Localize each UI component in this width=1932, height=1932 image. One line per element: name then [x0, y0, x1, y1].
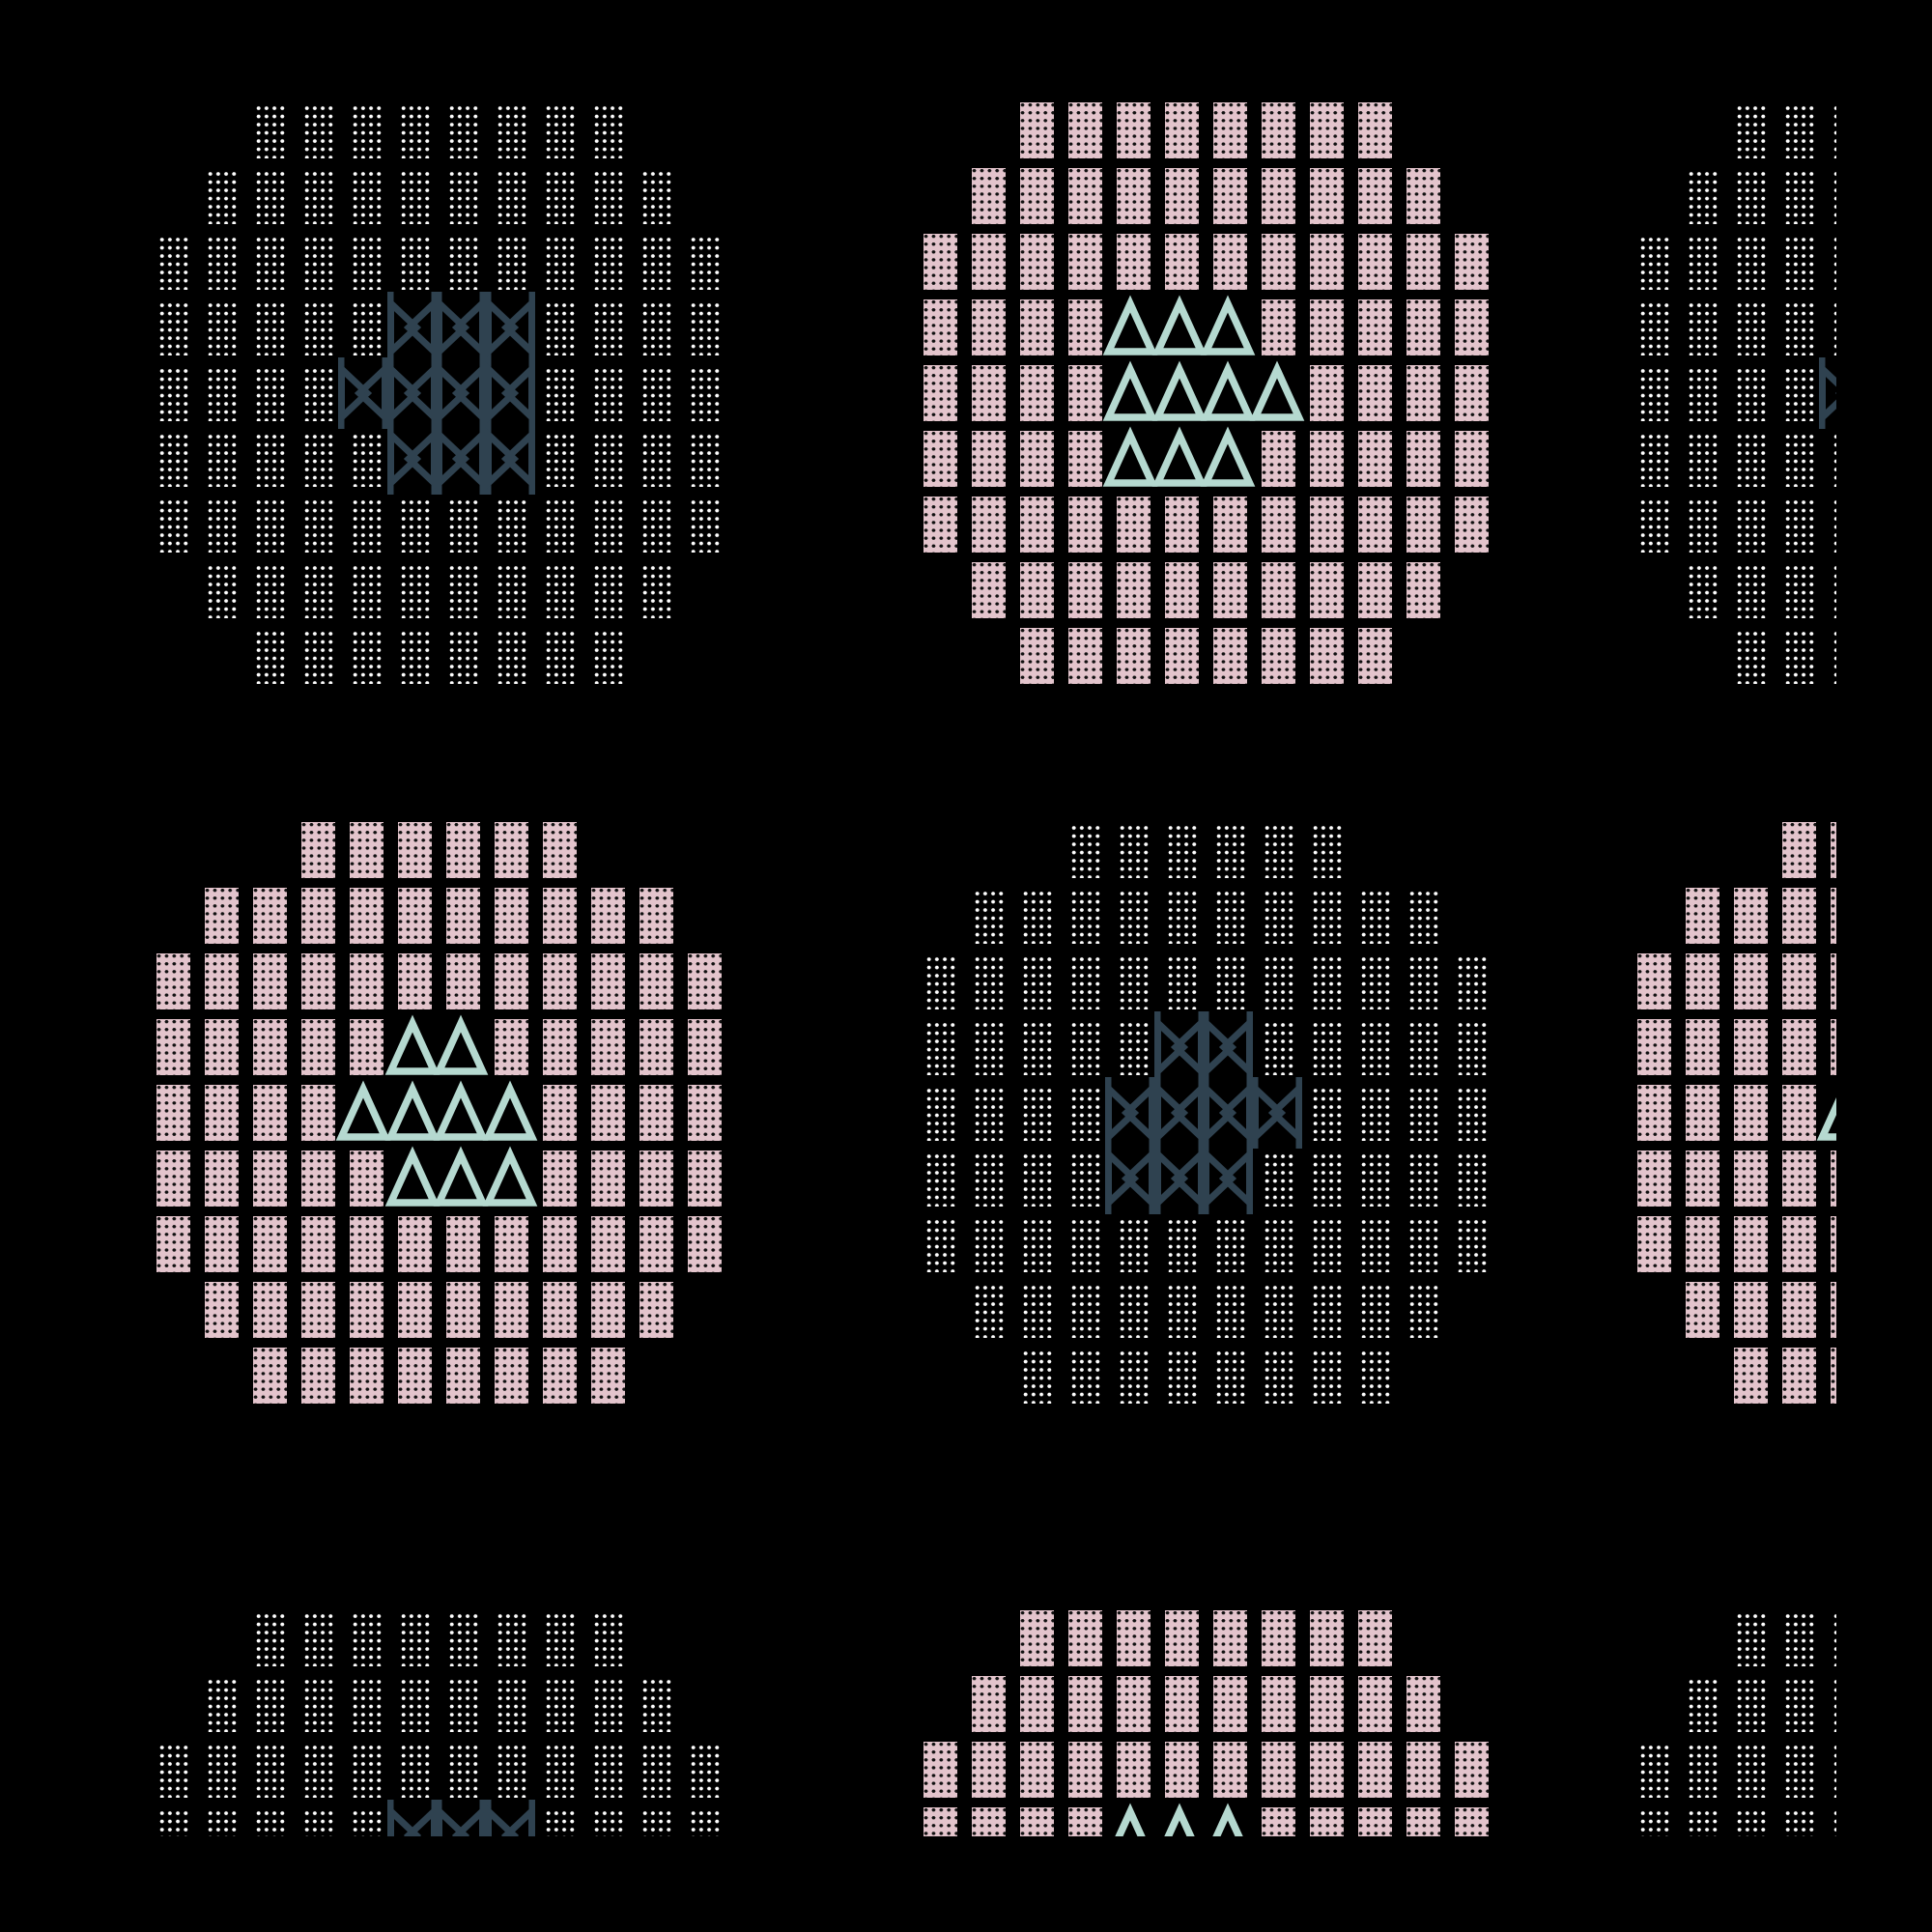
dotted-tile [1686, 1676, 1719, 1732]
dotted-tile [1734, 431, 1768, 487]
dotted-tile [1782, 299, 1816, 355]
dotted-tile [1734, 1742, 1768, 1798]
dotted-tile [1117, 234, 1151, 290]
dotted-tile [1406, 234, 1440, 290]
dotted-tile [1068, 299, 1102, 355]
dotted-tile [639, 234, 673, 290]
dotted-tile [350, 953, 384, 1009]
dotted-tile [350, 1742, 384, 1798]
bowtie-icon [387, 357, 438, 429]
dotted-tile [1117, 628, 1151, 684]
dotted-tile [205, 431, 239, 487]
dotted-tile [1734, 1019, 1768, 1075]
dotted-tile [446, 1282, 480, 1338]
bowtie-icon [1203, 1077, 1253, 1149]
dotted-tile [156, 1085, 190, 1141]
dotted-tile [543, 562, 577, 618]
dotted-tile [639, 497, 673, 553]
dotted-tile [1068, 1282, 1102, 1338]
dotted-tile [301, 1282, 335, 1338]
dotted-tile [350, 1019, 384, 1075]
dotted-tile [1734, 1216, 1768, 1272]
dotted-tile [1831, 168, 1836, 224]
dotted-tile [301, 1085, 335, 1141]
dotted-tile [301, 299, 335, 355]
dotted-tile [1455, 1019, 1489, 1075]
dotted-tile [1782, 168, 1816, 224]
dotted-tile [1406, 1742, 1440, 1798]
dotted-tile [1406, 562, 1440, 618]
dotted-tile [1262, 299, 1295, 355]
dotted-tile [639, 1151, 673, 1207]
dotted-tile [205, 365, 239, 421]
dotted-tile [1734, 953, 1768, 1009]
dotted-tile [543, 888, 577, 944]
dotted-tile [1262, 1610, 1295, 1666]
dotted-tile [1455, 497, 1489, 553]
dotted-tile [446, 1676, 480, 1732]
dotted-tile [1117, 1019, 1151, 1075]
dotted-tile [1406, 497, 1440, 553]
dotted-tile [1020, 1807, 1054, 1836]
dotted-tile [1782, 1742, 1816, 1798]
dotted-tile [1831, 1216, 1836, 1272]
dotted-tile [1734, 1151, 1768, 1207]
triangle-icon [1203, 299, 1253, 355]
dotted-tile [1213, 1676, 1247, 1732]
dotted-tile [156, 1742, 190, 1798]
dotted-tile [543, 234, 577, 290]
pattern-canvas [0, 0, 1932, 1932]
dotted-tile [1406, 1216, 1440, 1272]
dotted-tile [543, 431, 577, 487]
dotted-tile [156, 431, 190, 487]
dotted-tile [1358, 1610, 1392, 1666]
dotted-tile [1831, 1807, 1836, 1836]
dotted-tile [1782, 1282, 1816, 1338]
dotted-tile [1020, 1019, 1054, 1075]
dotted-tile [1068, 1676, 1102, 1732]
dotted-tile [350, 562, 384, 618]
dotted-tile [156, 953, 190, 1009]
dotted-tile [1165, 628, 1199, 684]
dotted-tile [398, 1348, 432, 1404]
dotted-tile [1455, 1216, 1489, 1272]
dotted-tile [1406, 1807, 1440, 1836]
dotted-tile [495, 1742, 528, 1798]
dotted-tile [350, 888, 384, 944]
dotted-tile [1165, 822, 1199, 878]
dotted-tile [350, 102, 384, 158]
dotted-tile [1068, 1085, 1102, 1141]
dotted-tile [1117, 1742, 1151, 1798]
dotted-tile [1310, 1151, 1344, 1207]
dotted-tile [1310, 1019, 1344, 1075]
dotted-tile [543, 1085, 577, 1141]
dotted-tile [1406, 365, 1440, 421]
dotted-tile [1637, 1742, 1671, 1798]
dotted-tile [591, 953, 625, 1009]
dotted-tile [1637, 1807, 1671, 1836]
dotted-tile [1637, 234, 1671, 290]
triangle-icon [485, 1151, 535, 1207]
dotted-tile [301, 1742, 335, 1798]
dotted-tile [1406, 1019, 1440, 1075]
dotted-tile [1213, 888, 1247, 944]
dotted-tile [1358, 365, 1392, 421]
dotted-tile [1734, 234, 1768, 290]
dotted-tile [1213, 822, 1247, 878]
dotted-tile [1782, 1610, 1816, 1666]
dotted-tile [591, 299, 625, 355]
dotted-tile [1782, 1676, 1816, 1732]
dotted-tile [301, 888, 335, 944]
dotted-tile [1782, 562, 1816, 618]
dotted-tile [972, 234, 1006, 290]
dotted-tile [639, 1282, 673, 1338]
dotted-tile [688, 1807, 722, 1836]
dotted-tile [1406, 1676, 1440, 1732]
dotted-tile [923, 1742, 957, 1798]
dotted-tile [1637, 299, 1671, 355]
dotted-tile [639, 1807, 673, 1836]
triangle-icon [387, 1151, 438, 1207]
dotted-tile [1310, 234, 1344, 290]
dotted-tile [1686, 1282, 1719, 1338]
dotted-tile [1117, 953, 1151, 1009]
dotted-tile [446, 1348, 480, 1404]
dotted-tile [1831, 431, 1836, 487]
dotted-tile [1262, 1742, 1295, 1798]
dotted-tile [1637, 431, 1671, 487]
dotted-tile [591, 1807, 625, 1836]
dotted-tile [1782, 1019, 1816, 1075]
bowtie-icon [485, 423, 535, 495]
dotted-tile [1020, 953, 1054, 1009]
dotted-tile [253, 1676, 287, 1732]
dotted-tile [350, 299, 384, 355]
dotted-tile [1068, 1151, 1102, 1207]
dotted-tile [543, 1610, 577, 1666]
dotted-tile [1310, 1807, 1344, 1836]
dotted-tile [591, 102, 625, 158]
triangle-icon [1154, 431, 1205, 487]
dotted-tile [1068, 1742, 1102, 1798]
triangle-icon [1203, 365, 1253, 421]
dotted-tile [1358, 1216, 1392, 1272]
dotted-tile [1358, 299, 1392, 355]
dotted-tile [1068, 953, 1102, 1009]
dotted-tile [972, 888, 1006, 944]
dotted-tile [1020, 1085, 1054, 1141]
dotted-tile [1358, 1151, 1392, 1207]
dotted-tile [591, 1610, 625, 1666]
dotted-tile [398, 497, 432, 553]
dotted-tile [1165, 102, 1199, 158]
dotted-tile [1068, 102, 1102, 158]
dotted-tile [1310, 628, 1344, 684]
dotted-tile [398, 628, 432, 684]
bowtie-icon [436, 1800, 486, 1836]
dotted-tile [972, 1676, 1006, 1732]
dotted-tile [205, 1019, 239, 1075]
dotted-tile [1117, 822, 1151, 878]
dotted-tile [301, 497, 335, 553]
dotted-tile [1455, 431, 1489, 487]
dotted-tile [543, 1742, 577, 1798]
dotted-tile [1310, 299, 1344, 355]
dotted-tile [1068, 562, 1102, 618]
dotted-tile [1637, 1019, 1671, 1075]
triangle-icon [387, 1085, 438, 1141]
dotted-tile [1831, 1282, 1836, 1338]
dotted-tile [1165, 562, 1199, 618]
dotted-tile [1262, 102, 1295, 158]
dotted-tile [591, 234, 625, 290]
dotted-tile [301, 1610, 335, 1666]
dotted-tile [688, 365, 722, 421]
dotted-tile [688, 1151, 722, 1207]
dotted-tile [1213, 102, 1247, 158]
dotted-tile [1358, 888, 1392, 944]
dotted-tile [301, 1019, 335, 1075]
dotted-tile [543, 1348, 577, 1404]
dotted-tile [1165, 1610, 1199, 1666]
dotted-tile [1358, 1085, 1392, 1141]
dotted-tile [1358, 1742, 1392, 1798]
dotted-tile [1117, 1348, 1151, 1404]
dotted-tile [1310, 102, 1344, 158]
triangle-icon [436, 1019, 486, 1075]
dotted-tile [1637, 953, 1671, 1009]
dotted-tile [1068, 628, 1102, 684]
dotted-tile [1165, 1742, 1199, 1798]
dotted-tile [253, 1019, 287, 1075]
dotted-tile [495, 1676, 528, 1732]
dotted-tile [923, 953, 957, 1009]
dotted-tile [1213, 1216, 1247, 1272]
bowtie-icon [485, 292, 535, 363]
dotted-tile [253, 1348, 287, 1404]
dotted-tile [1686, 168, 1719, 224]
dotted-tile [1213, 953, 1247, 1009]
dotted-tile [1213, 168, 1247, 224]
dotted-tile [923, 365, 957, 421]
dotted-tile [1020, 562, 1054, 618]
dotted-tile [253, 628, 287, 684]
bowtie-icon [436, 357, 486, 429]
dotted-tile [972, 1151, 1006, 1207]
dotted-tile [301, 102, 335, 158]
dotted-tile [1068, 168, 1102, 224]
bowtie-icon [485, 357, 535, 429]
dotted-tile [301, 365, 335, 421]
dotted-tile [591, 431, 625, 487]
dotted-tile [1406, 431, 1440, 487]
dotted-tile [1406, 168, 1440, 224]
dotted-tile [350, 1610, 384, 1666]
dotted-tile [1455, 1807, 1489, 1836]
triangle-icon [1154, 365, 1205, 421]
dotted-tile [1068, 1348, 1102, 1404]
dotted-tile [350, 822, 384, 878]
dotted-tile [253, 953, 287, 1009]
dotted-tile [1831, 102, 1836, 158]
dotted-tile [1213, 1742, 1247, 1798]
dotted-tile [688, 431, 722, 487]
dotted-tile [972, 1807, 1006, 1836]
dotted-tile [1358, 102, 1392, 158]
dotted-tile [972, 1282, 1006, 1338]
dotted-tile [1637, 365, 1671, 421]
dotted-tile [1262, 888, 1295, 944]
dotted-tile [446, 953, 480, 1009]
dotted-tile [398, 1282, 432, 1338]
dotted-tile [639, 1676, 673, 1732]
dotted-tile [1310, 822, 1344, 878]
dotted-tile [495, 497, 528, 553]
dotted-tile [639, 365, 673, 421]
dotted-tile [495, 822, 528, 878]
dotted-tile [1734, 497, 1768, 553]
dotted-tile [591, 1348, 625, 1404]
triangle-icon [1203, 431, 1253, 487]
dotted-tile [205, 1807, 239, 1836]
dotted-tile [1310, 888, 1344, 944]
triangle-icon [485, 1085, 535, 1141]
dotted-tile [350, 1348, 384, 1404]
dotted-tile [1455, 1151, 1489, 1207]
dotted-tile [1117, 102, 1151, 158]
dotted-tile [253, 1807, 287, 1836]
dotted-tile [253, 1610, 287, 1666]
bowtie-icon [1154, 1011, 1205, 1083]
dotted-tile [591, 562, 625, 618]
dotted-tile [398, 1610, 432, 1666]
triangle-icon [1819, 1085, 1836, 1141]
dotted-tile [301, 1807, 335, 1836]
dotted-tile [1637, 1216, 1671, 1272]
dotted-tile [495, 168, 528, 224]
dotted-tile [972, 431, 1006, 487]
dotted-tile [398, 1742, 432, 1798]
dotted-tile [398, 234, 432, 290]
dotted-tile [688, 1742, 722, 1798]
dotted-tile [398, 1676, 432, 1732]
dotted-tile [1734, 1282, 1768, 1338]
dotted-tile [1165, 1348, 1199, 1404]
dotted-tile [301, 953, 335, 1009]
dotted-tile [1686, 1085, 1719, 1141]
dotted-tile [1262, 1807, 1295, 1836]
dotted-tile [156, 365, 190, 421]
dotted-tile [1782, 1216, 1816, 1272]
dotted-tile [1734, 102, 1768, 158]
dotted-tile [1782, 888, 1816, 944]
dotted-tile [1020, 628, 1054, 684]
dotted-tile [495, 1282, 528, 1338]
dotted-tile [1406, 1282, 1440, 1338]
dotted-tile [1358, 1019, 1392, 1075]
dotted-tile [398, 822, 432, 878]
dotted-tile [253, 431, 287, 487]
dotted-tile [1358, 953, 1392, 1009]
dotted-tile [1637, 497, 1671, 553]
dotted-tile [1782, 431, 1816, 487]
dotted-tile [350, 1282, 384, 1338]
dotted-tile [1262, 1348, 1295, 1404]
dotted-tile [1782, 365, 1816, 421]
dotted-tile [301, 1151, 335, 1207]
dotted-tile [350, 168, 384, 224]
dotted-tile [1262, 497, 1295, 553]
dotted-tile [543, 822, 577, 878]
dotted-tile [350, 628, 384, 684]
dotted-tile [1020, 497, 1054, 553]
triangle-icon [1154, 299, 1205, 355]
dotted-tile [1782, 1348, 1816, 1404]
dotted-tile [1782, 953, 1816, 1009]
triangle-icon [1203, 1807, 1253, 1836]
dotted-tile [1358, 431, 1392, 487]
dotted-tile [1068, 1019, 1102, 1075]
dotted-tile [1262, 953, 1295, 1009]
dotted-tile [1686, 365, 1719, 421]
dotted-tile [495, 1348, 528, 1404]
triangle-icon [338, 1085, 388, 1141]
dotted-tile [1358, 628, 1392, 684]
dotted-tile [1734, 1348, 1768, 1404]
dotted-tile [1831, 299, 1836, 355]
dotted-tile [1165, 1676, 1199, 1732]
dotted-tile [1831, 1019, 1836, 1075]
dotted-tile [1020, 1282, 1054, 1338]
bowtie-icon [387, 292, 438, 363]
bowtie-icon [436, 423, 486, 495]
dotted-tile [1686, 1807, 1719, 1836]
dotted-tile [205, 1216, 239, 1272]
dotted-tile [688, 497, 722, 553]
dotted-tile [398, 102, 432, 158]
dotted-tile [1782, 628, 1816, 684]
dotted-tile [1165, 1216, 1199, 1272]
bowtie-icon [436, 292, 486, 363]
dotted-tile [495, 562, 528, 618]
dotted-tile [1165, 1282, 1199, 1338]
dotted-tile [1455, 234, 1489, 290]
dotted-tile [1262, 168, 1295, 224]
dotted-tile [591, 628, 625, 684]
dotted-tile [1310, 365, 1344, 421]
dotted-tile [591, 497, 625, 553]
dotted-tile [1068, 1610, 1102, 1666]
dotted-tile [1020, 1216, 1054, 1272]
dotted-tile [1782, 102, 1816, 158]
dotted-tile [1165, 888, 1199, 944]
dotted-tile [1310, 562, 1344, 618]
dotted-tile [205, 299, 239, 355]
dotted-tile [1406, 1151, 1440, 1207]
bowtie-icon [1203, 1143, 1253, 1214]
dotted-tile [1262, 628, 1295, 684]
dotted-tile [923, 497, 957, 553]
dotted-tile [1310, 1216, 1344, 1272]
dotted-tile [1310, 497, 1344, 553]
dotted-tile [1686, 953, 1719, 1009]
dotted-tile [1213, 1348, 1247, 1404]
dotted-tile [688, 1085, 722, 1141]
dotted-tile [1406, 1085, 1440, 1141]
